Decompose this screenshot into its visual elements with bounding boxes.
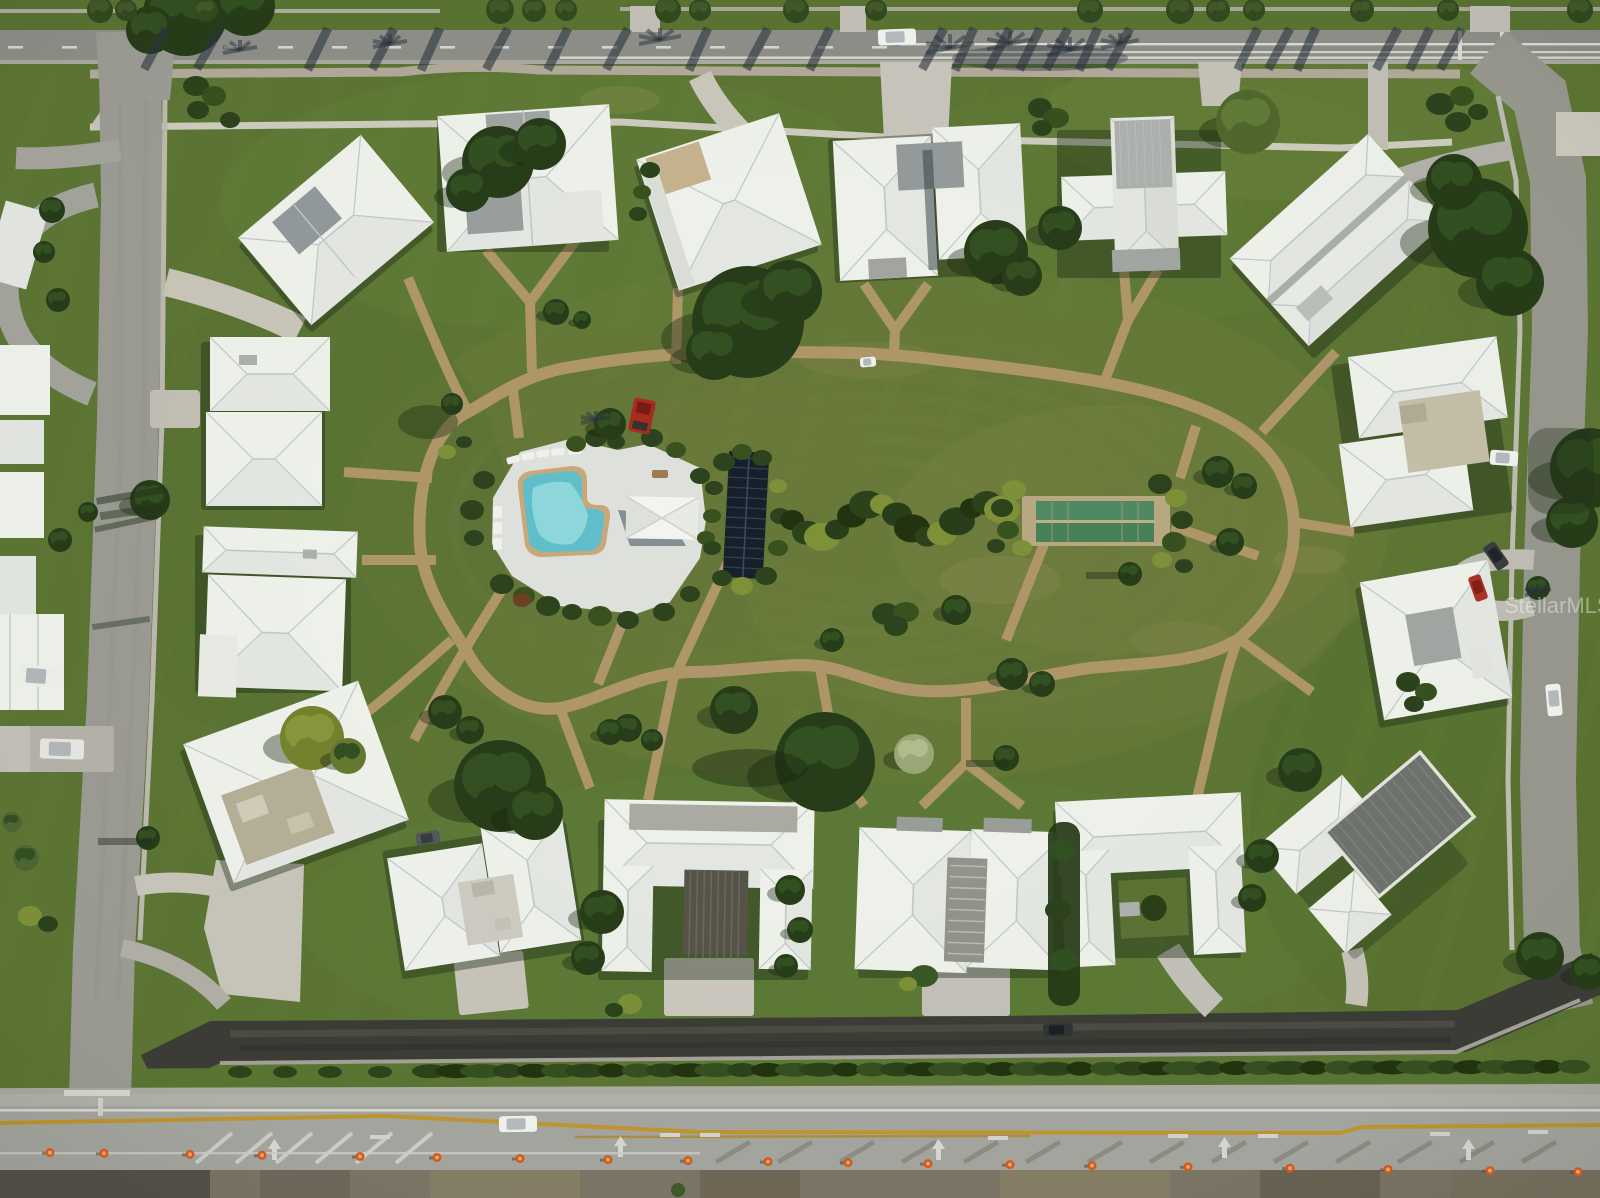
- svg-text:StellarMLS: StellarMLS: [1504, 593, 1600, 618]
